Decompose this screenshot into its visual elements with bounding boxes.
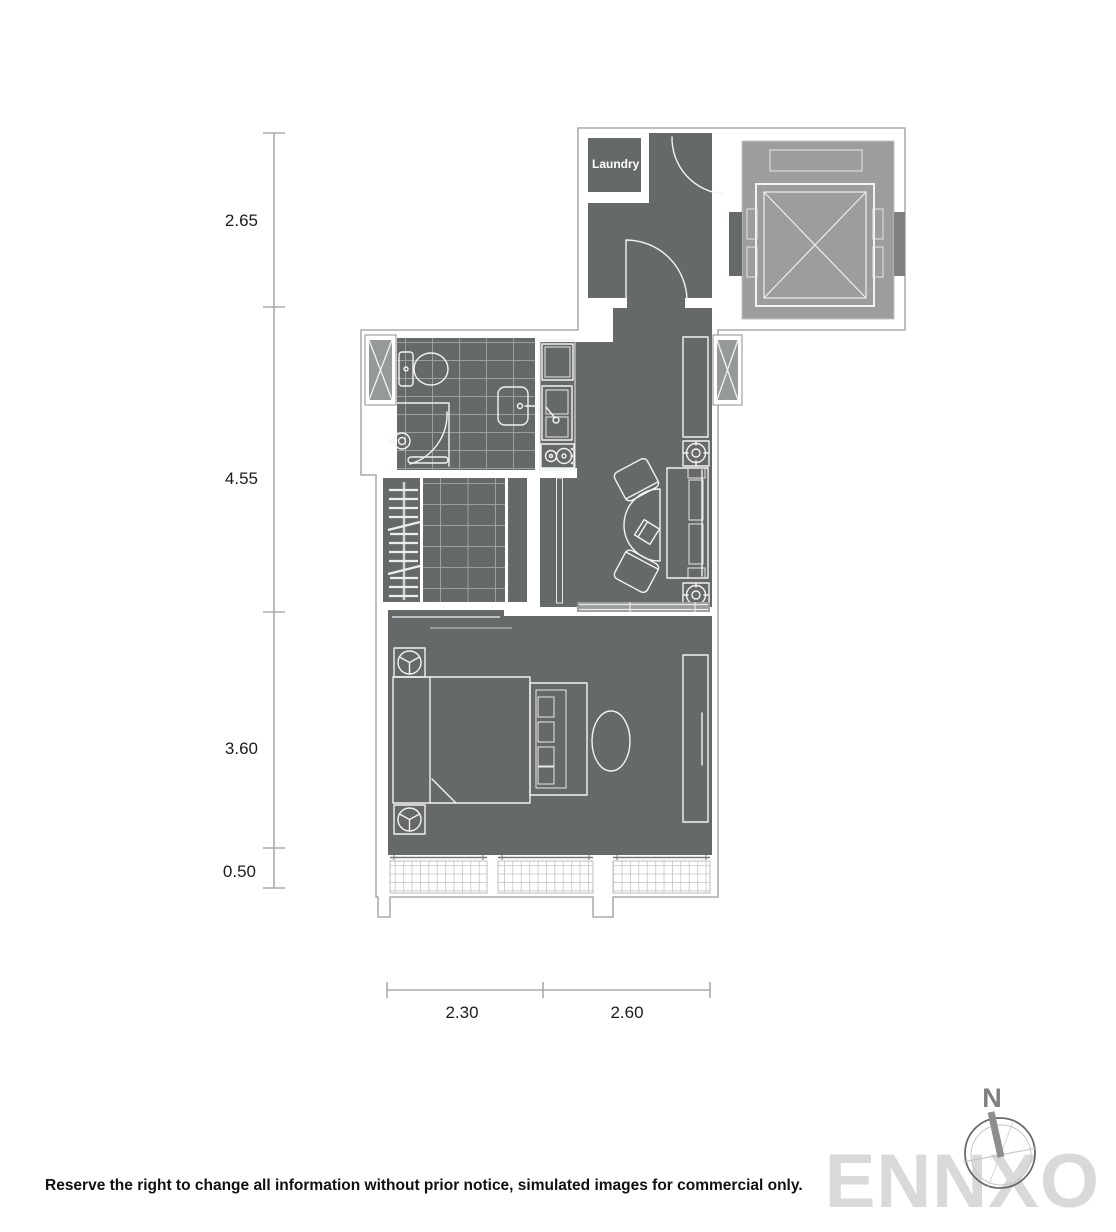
footer-disclaimer: Reserve the right to change all informat… <box>45 1177 803 1194</box>
balcony-railing-2 <box>498 861 593 893</box>
elevator <box>729 141 905 319</box>
brand-watermark: ENNXO <box>825 1139 1100 1224</box>
column-left <box>365 335 396 405</box>
balcony <box>390 855 710 893</box>
closet-floor <box>383 478 420 602</box>
dim-label-2-65: 2.65 <box>225 211 258 230</box>
dimension-horizontal: 2.30 2.60 <box>387 982 710 1022</box>
elevator-door-right <box>894 212 905 276</box>
bedroom-floor <box>388 616 712 855</box>
entry-hall <box>588 203 712 298</box>
floor-plan-canvas: ENNXO <box>0 0 1116 1232</box>
dim-label-4-55: 4.55 <box>225 469 258 488</box>
laundry-label: Laundry <box>592 157 640 171</box>
hall-side-strip <box>508 478 527 602</box>
dim-label-0-50: 0.50 <box>223 862 256 881</box>
bathroom-tiles <box>397 338 535 470</box>
dim-label-3-60: 3.60 <box>225 739 258 758</box>
dimension-vertical: 2.65 4.55 3.60 0.50 <box>223 133 285 888</box>
floor-plan-page: ENNXO <box>0 0 1116 1232</box>
hall-door-opening <box>627 298 685 308</box>
balcony-railing-1 <box>390 861 487 893</box>
dim-label-2-60: 2.60 <box>610 1003 643 1022</box>
north-label: N <box>982 1083 1002 1113</box>
sliding-glass-partition <box>577 602 710 612</box>
column-right <box>713 335 742 405</box>
dim-label-2-30: 2.30 <box>445 1003 478 1022</box>
balcony-railing-3 <box>613 861 710 893</box>
elevator-shaft <box>742 141 894 319</box>
elevator-door-left <box>729 212 742 276</box>
hall-tiles <box>423 478 505 602</box>
